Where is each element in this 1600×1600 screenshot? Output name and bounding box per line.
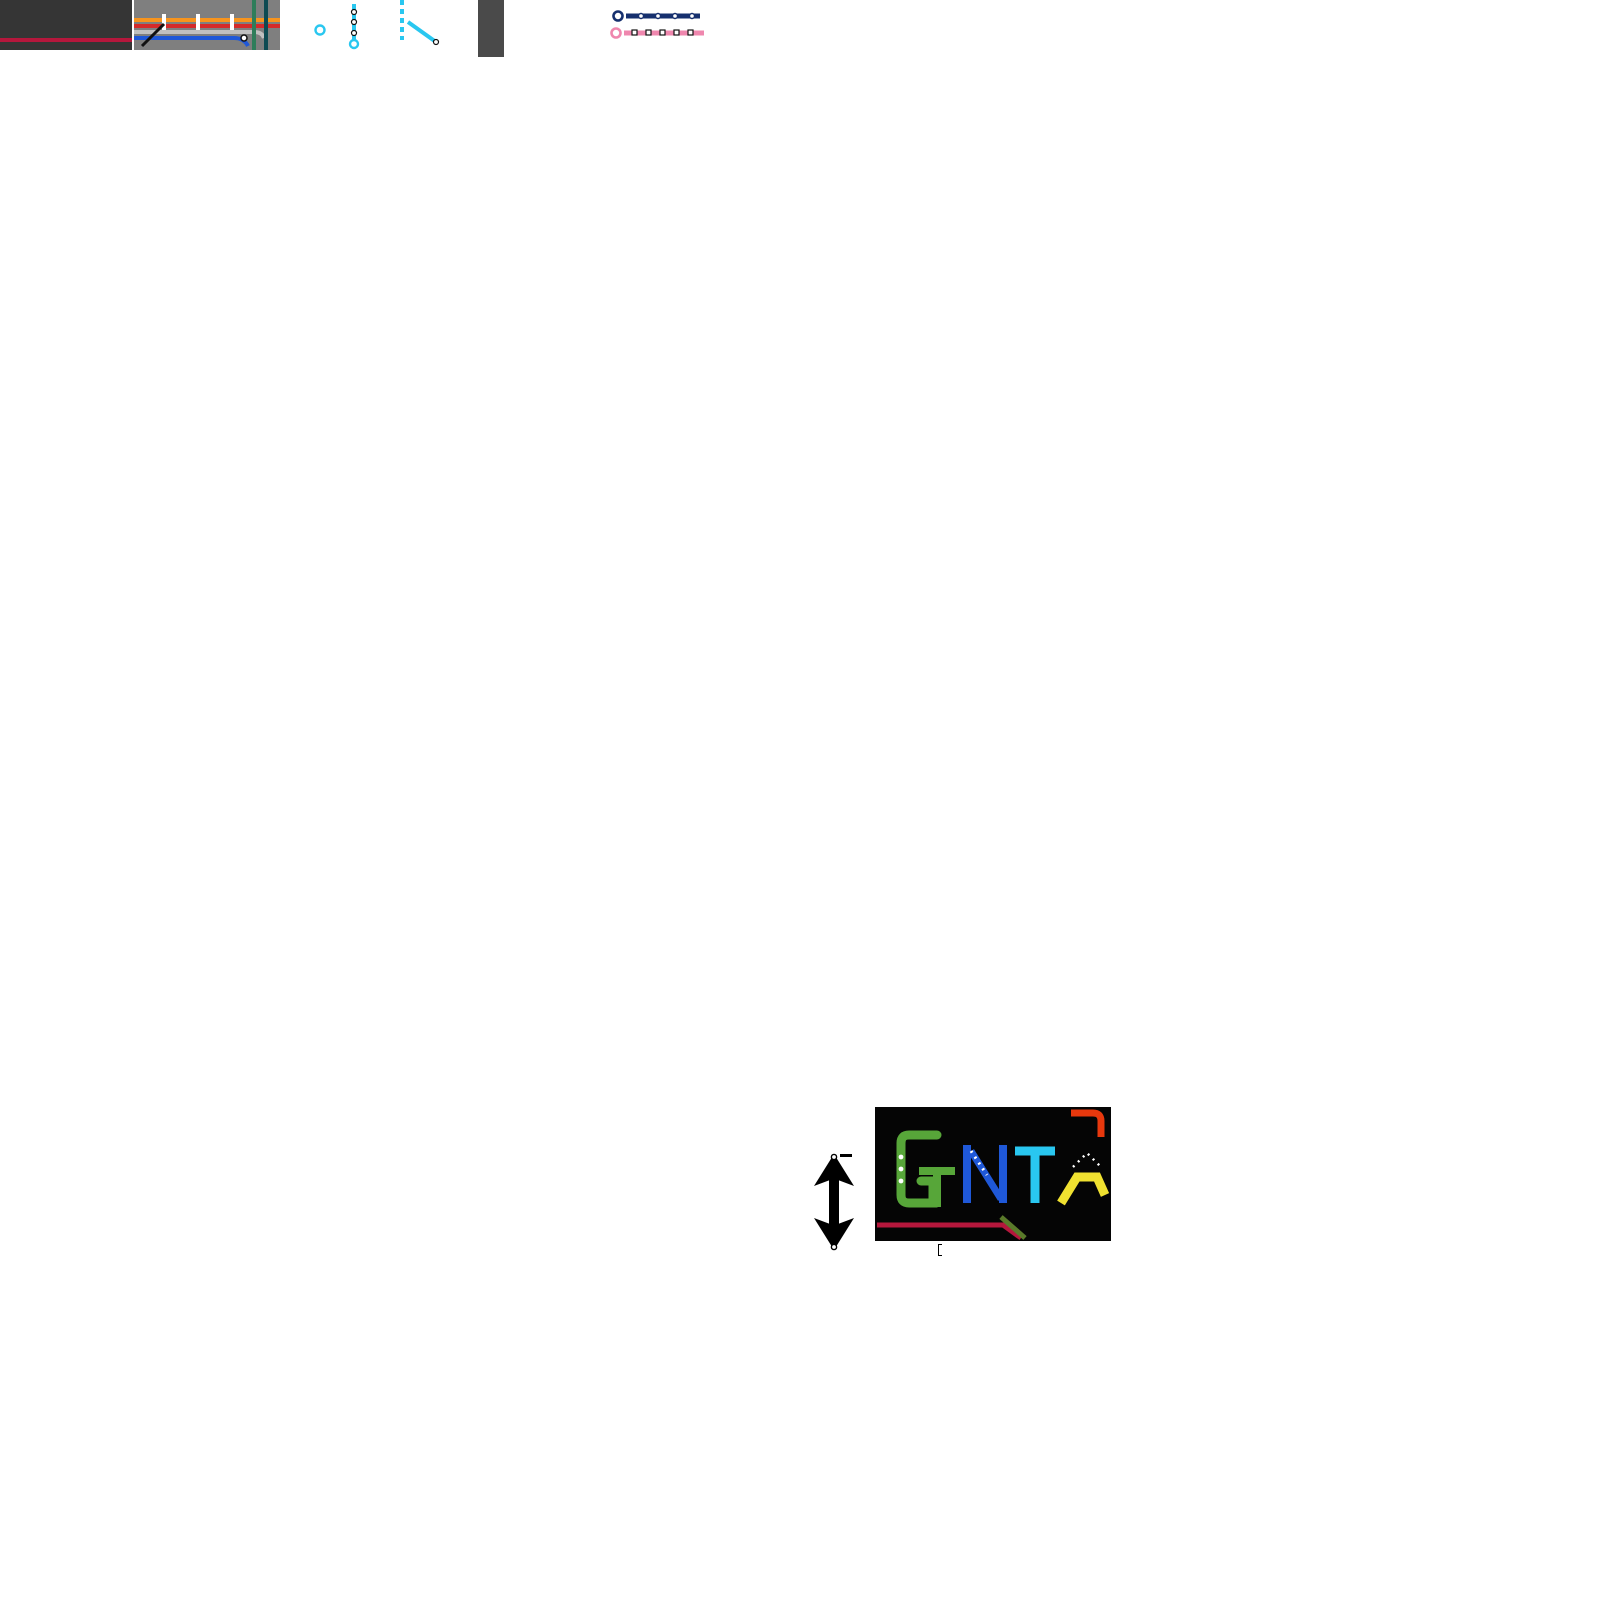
inset-lines-art xyxy=(134,0,280,50)
inset-panel-downtown-branch xyxy=(134,0,280,50)
service-notes-left xyxy=(706,2,932,54)
transit-map-canvas[interactable] xyxy=(0,0,1600,1600)
gtnta-footer-logo xyxy=(875,1107,1111,1241)
inset-panel-mall-swing-lines xyxy=(506,0,704,50)
gtnta-logo xyxy=(0,0,132,50)
footer-logo-caption xyxy=(938,1244,1168,1256)
logo-crimson-line xyxy=(0,38,132,42)
inset-lines-art xyxy=(282,0,478,50)
gtnta-footer-logo-art xyxy=(875,1107,1111,1241)
service-notes-right xyxy=(934,2,1110,54)
inset-lines-art xyxy=(506,0,704,50)
gtnta-transit-map-page xyxy=(0,0,1600,1600)
frame-divider xyxy=(478,0,504,57)
two-way-arrow-icon xyxy=(810,1152,858,1252)
inset-panel-radial-line xyxy=(282,0,478,50)
